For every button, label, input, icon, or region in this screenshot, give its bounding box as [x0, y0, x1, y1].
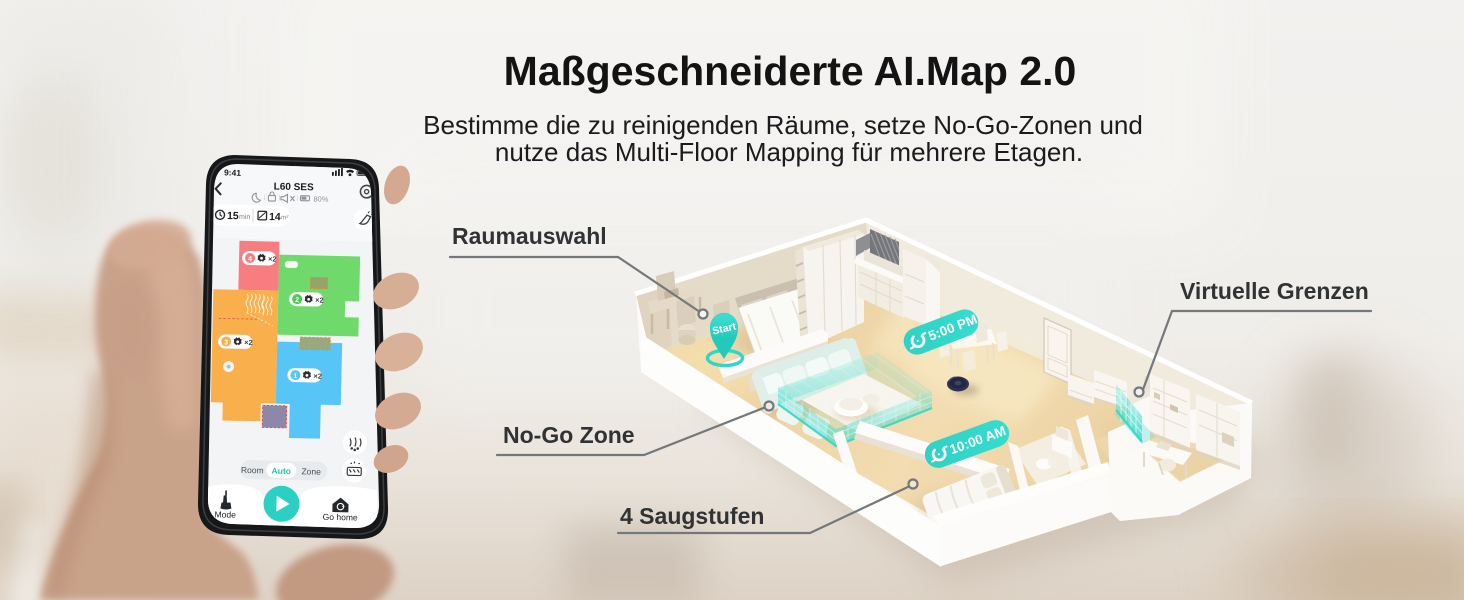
svg-text:×2: ×2: [244, 338, 253, 347]
svg-text:Go home: Go home: [323, 512, 358, 523]
svg-text:min: min: [239, 214, 251, 221]
svg-text:Bestimme die zu reinigenden Rä: Bestimme die zu reinigenden Räume, setze…: [423, 110, 1143, 140]
svg-text:×2: ×2: [315, 296, 324, 305]
svg-text:4 Saugstufen: 4 Saugstufen: [620, 503, 764, 529]
svg-text:14: 14: [269, 211, 281, 223]
svg-text:×2: ×2: [268, 254, 277, 263]
svg-text:15: 15: [227, 210, 239, 222]
svg-text:m²: m²: [281, 214, 290, 221]
svg-text:No-Go Zone: No-Go Zone: [503, 422, 635, 448]
svg-text:Mode: Mode: [215, 509, 237, 519]
svg-text:4: 4: [248, 256, 252, 263]
svg-text:Maßgeschneiderte AI.Map 2.0: Maßgeschneiderte AI.Map 2.0: [504, 48, 1077, 94]
svg-text:Zone: Zone: [301, 466, 321, 476]
svg-text:80%: 80%: [313, 194, 329, 203]
svg-text:1: 1: [293, 373, 297, 380]
svg-text:×2: ×2: [313, 371, 322, 380]
svg-text:3: 3: [224, 339, 228, 346]
svg-text:Virtuelle Grenzen: Virtuelle Grenzen: [1180, 278, 1369, 304]
svg-text:9:41: 9:41: [224, 167, 242, 177]
svg-text:2: 2: [295, 297, 299, 304]
svg-text:Auto: Auto: [271, 466, 291, 476]
svg-text:Room: Room: [241, 465, 264, 476]
svg-text:L60 SES: L60 SES: [274, 182, 315, 194]
svg-text:nutze das Multi-Floor Mapping: nutze das Multi-Floor Mapping für mehrer…: [495, 137, 1083, 167]
svg-text:Raumauswahl: Raumauswahl: [452, 223, 607, 249]
